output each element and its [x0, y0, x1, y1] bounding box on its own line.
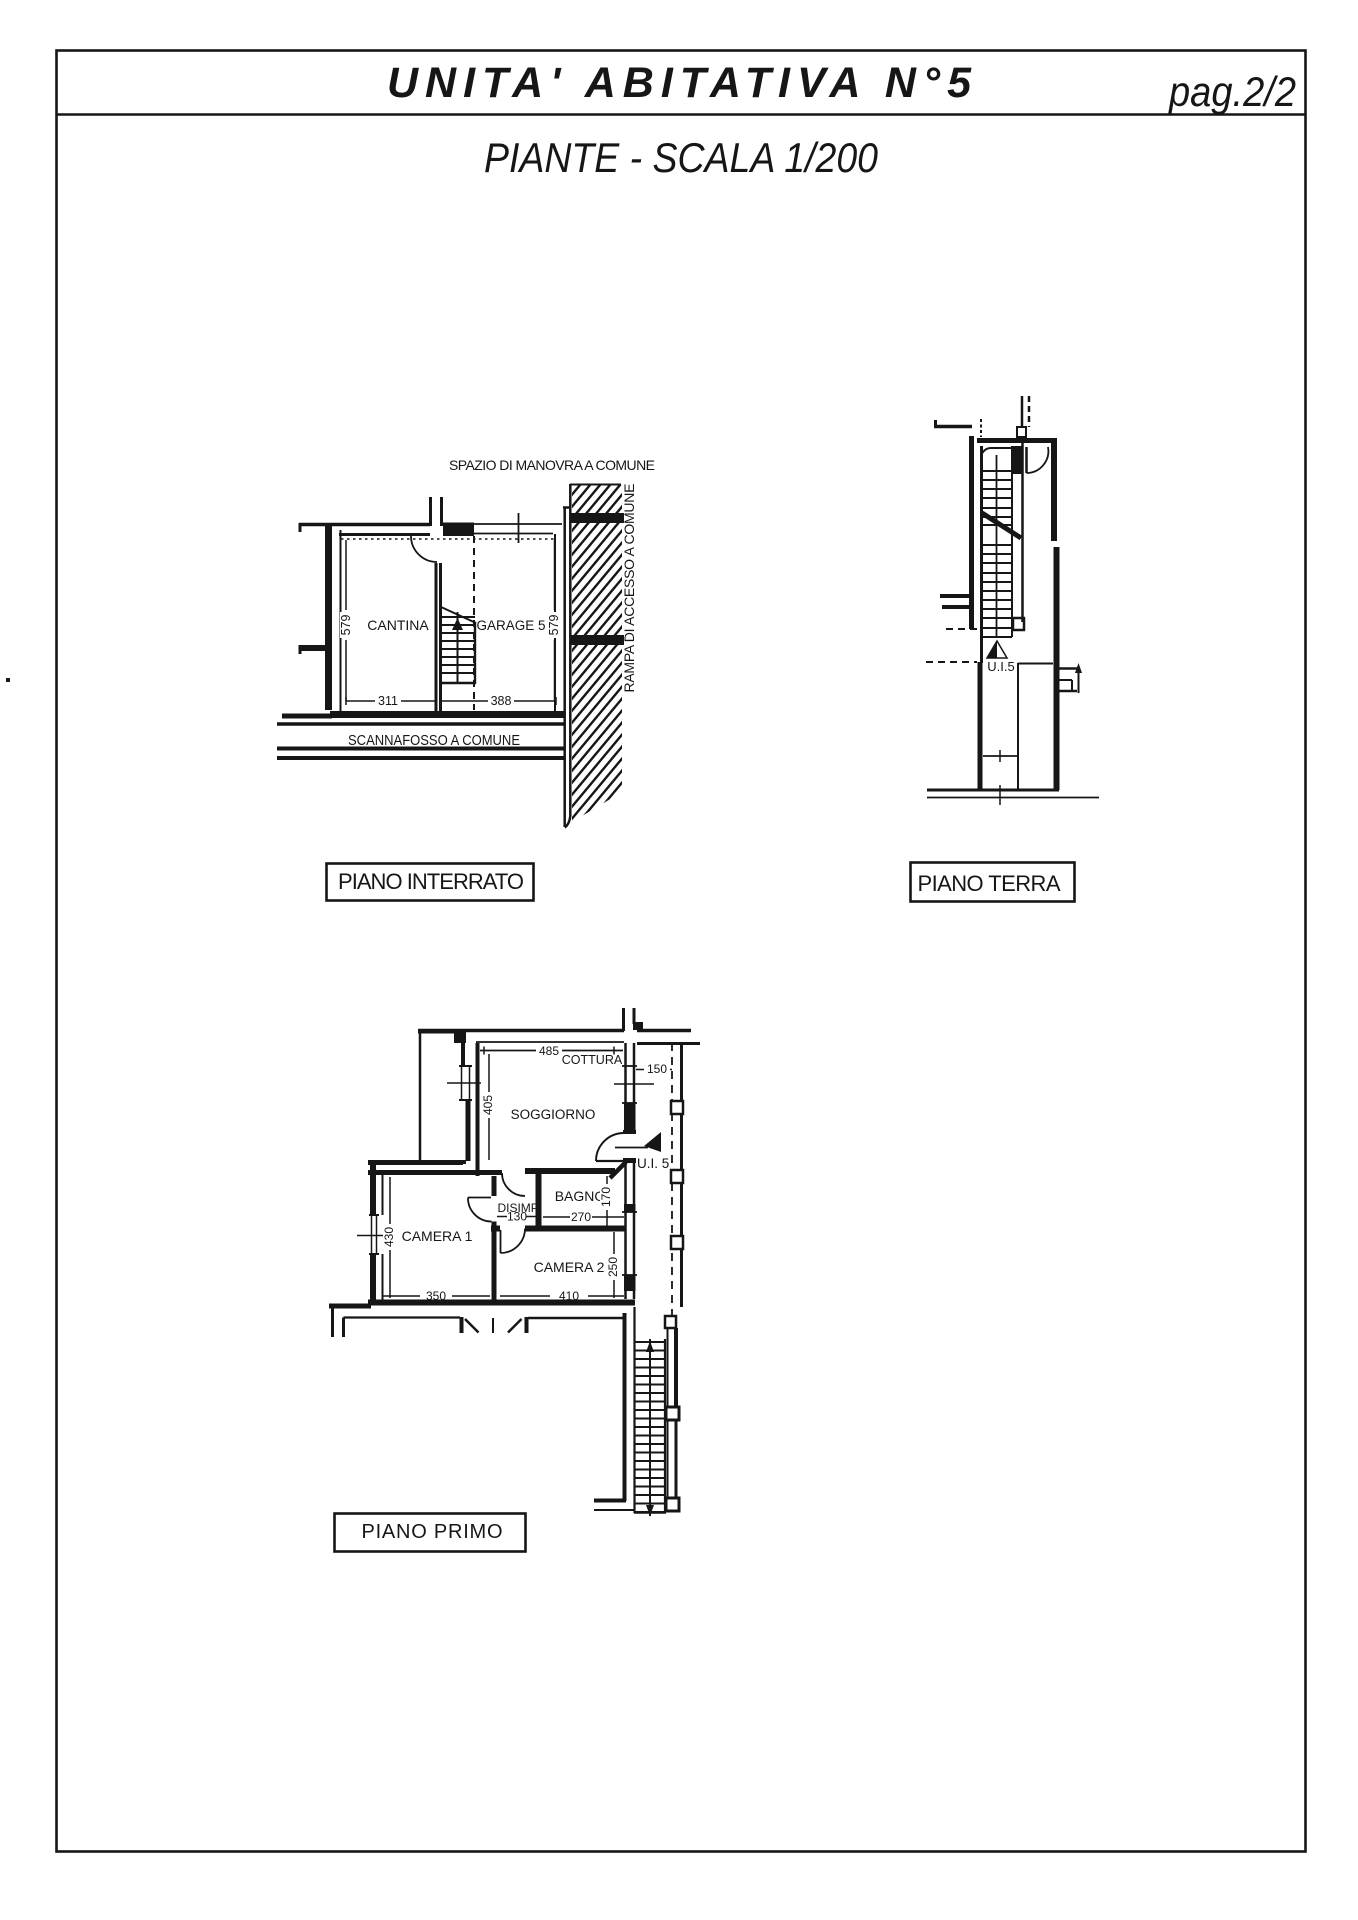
svg-text:U.I.5: U.I.5	[987, 659, 1014, 674]
svg-text:PIANO INTERRATO: PIANO INTERRATO	[338, 869, 524, 894]
svg-text:CAMERA 1: CAMERA 1	[402, 1228, 473, 1244]
svg-text:CAMERA 2: CAMERA 2	[534, 1259, 605, 1275]
svg-text:270: 270	[571, 1210, 591, 1224]
svg-text:PIANTE - SCALA 1/200: PIANTE - SCALA 1/200	[484, 134, 879, 181]
svg-text:430: 430	[382, 1227, 396, 1247]
svg-text:GARAGE 5: GARAGE 5	[476, 618, 545, 633]
svg-text:250: 250	[606, 1257, 620, 1277]
svg-text:350: 350	[426, 1289, 446, 1303]
svg-text:UNITA' ABITATIVA N°5: UNITA' ABITATIVA N°5	[387, 59, 979, 107]
svg-text:RAMPA DI ACCESSO A COMUNE: RAMPA DI ACCESSO A COMUNE	[621, 484, 637, 693]
svg-text:SOGGIORNO: SOGGIORNO	[511, 1107, 596, 1122]
svg-text:COTTURA: COTTURA	[562, 1053, 623, 1067]
svg-text:311: 311	[378, 694, 398, 708]
svg-text:PIANO TERRA: PIANO TERRA	[918, 871, 1061, 896]
svg-text:579: 579	[547, 615, 561, 636]
svg-text:CANTINA: CANTINA	[367, 617, 429, 633]
svg-text:U.I. 5: U.I. 5	[637, 1156, 669, 1171]
svg-text:405: 405	[481, 1095, 495, 1115]
svg-text:SPAZIO DI MANOVRA A COMUNE: SPAZIO DI MANOVRA A COMUNE	[449, 457, 655, 473]
svg-text:BAGNO: BAGNO	[555, 1188, 606, 1204]
svg-text:170: 170	[599, 1187, 613, 1207]
svg-text:PIANO PRIMO: PIANO PRIMO	[362, 1521, 503, 1543]
svg-text:579: 579	[339, 615, 353, 636]
svg-text:388: 388	[491, 694, 512, 708]
svg-text:130: 130	[507, 1210, 527, 1224]
svg-text:410: 410	[559, 1289, 579, 1303]
svg-text:150: 150	[647, 1062, 667, 1076]
svg-text:SCANNAFOSSO A COMUNE: SCANNAFOSSO A COMUNE	[348, 732, 520, 749]
svg-text:pag.2/2: pag.2/2	[1167, 68, 1296, 115]
svg-text:485: 485	[539, 1044, 559, 1058]
